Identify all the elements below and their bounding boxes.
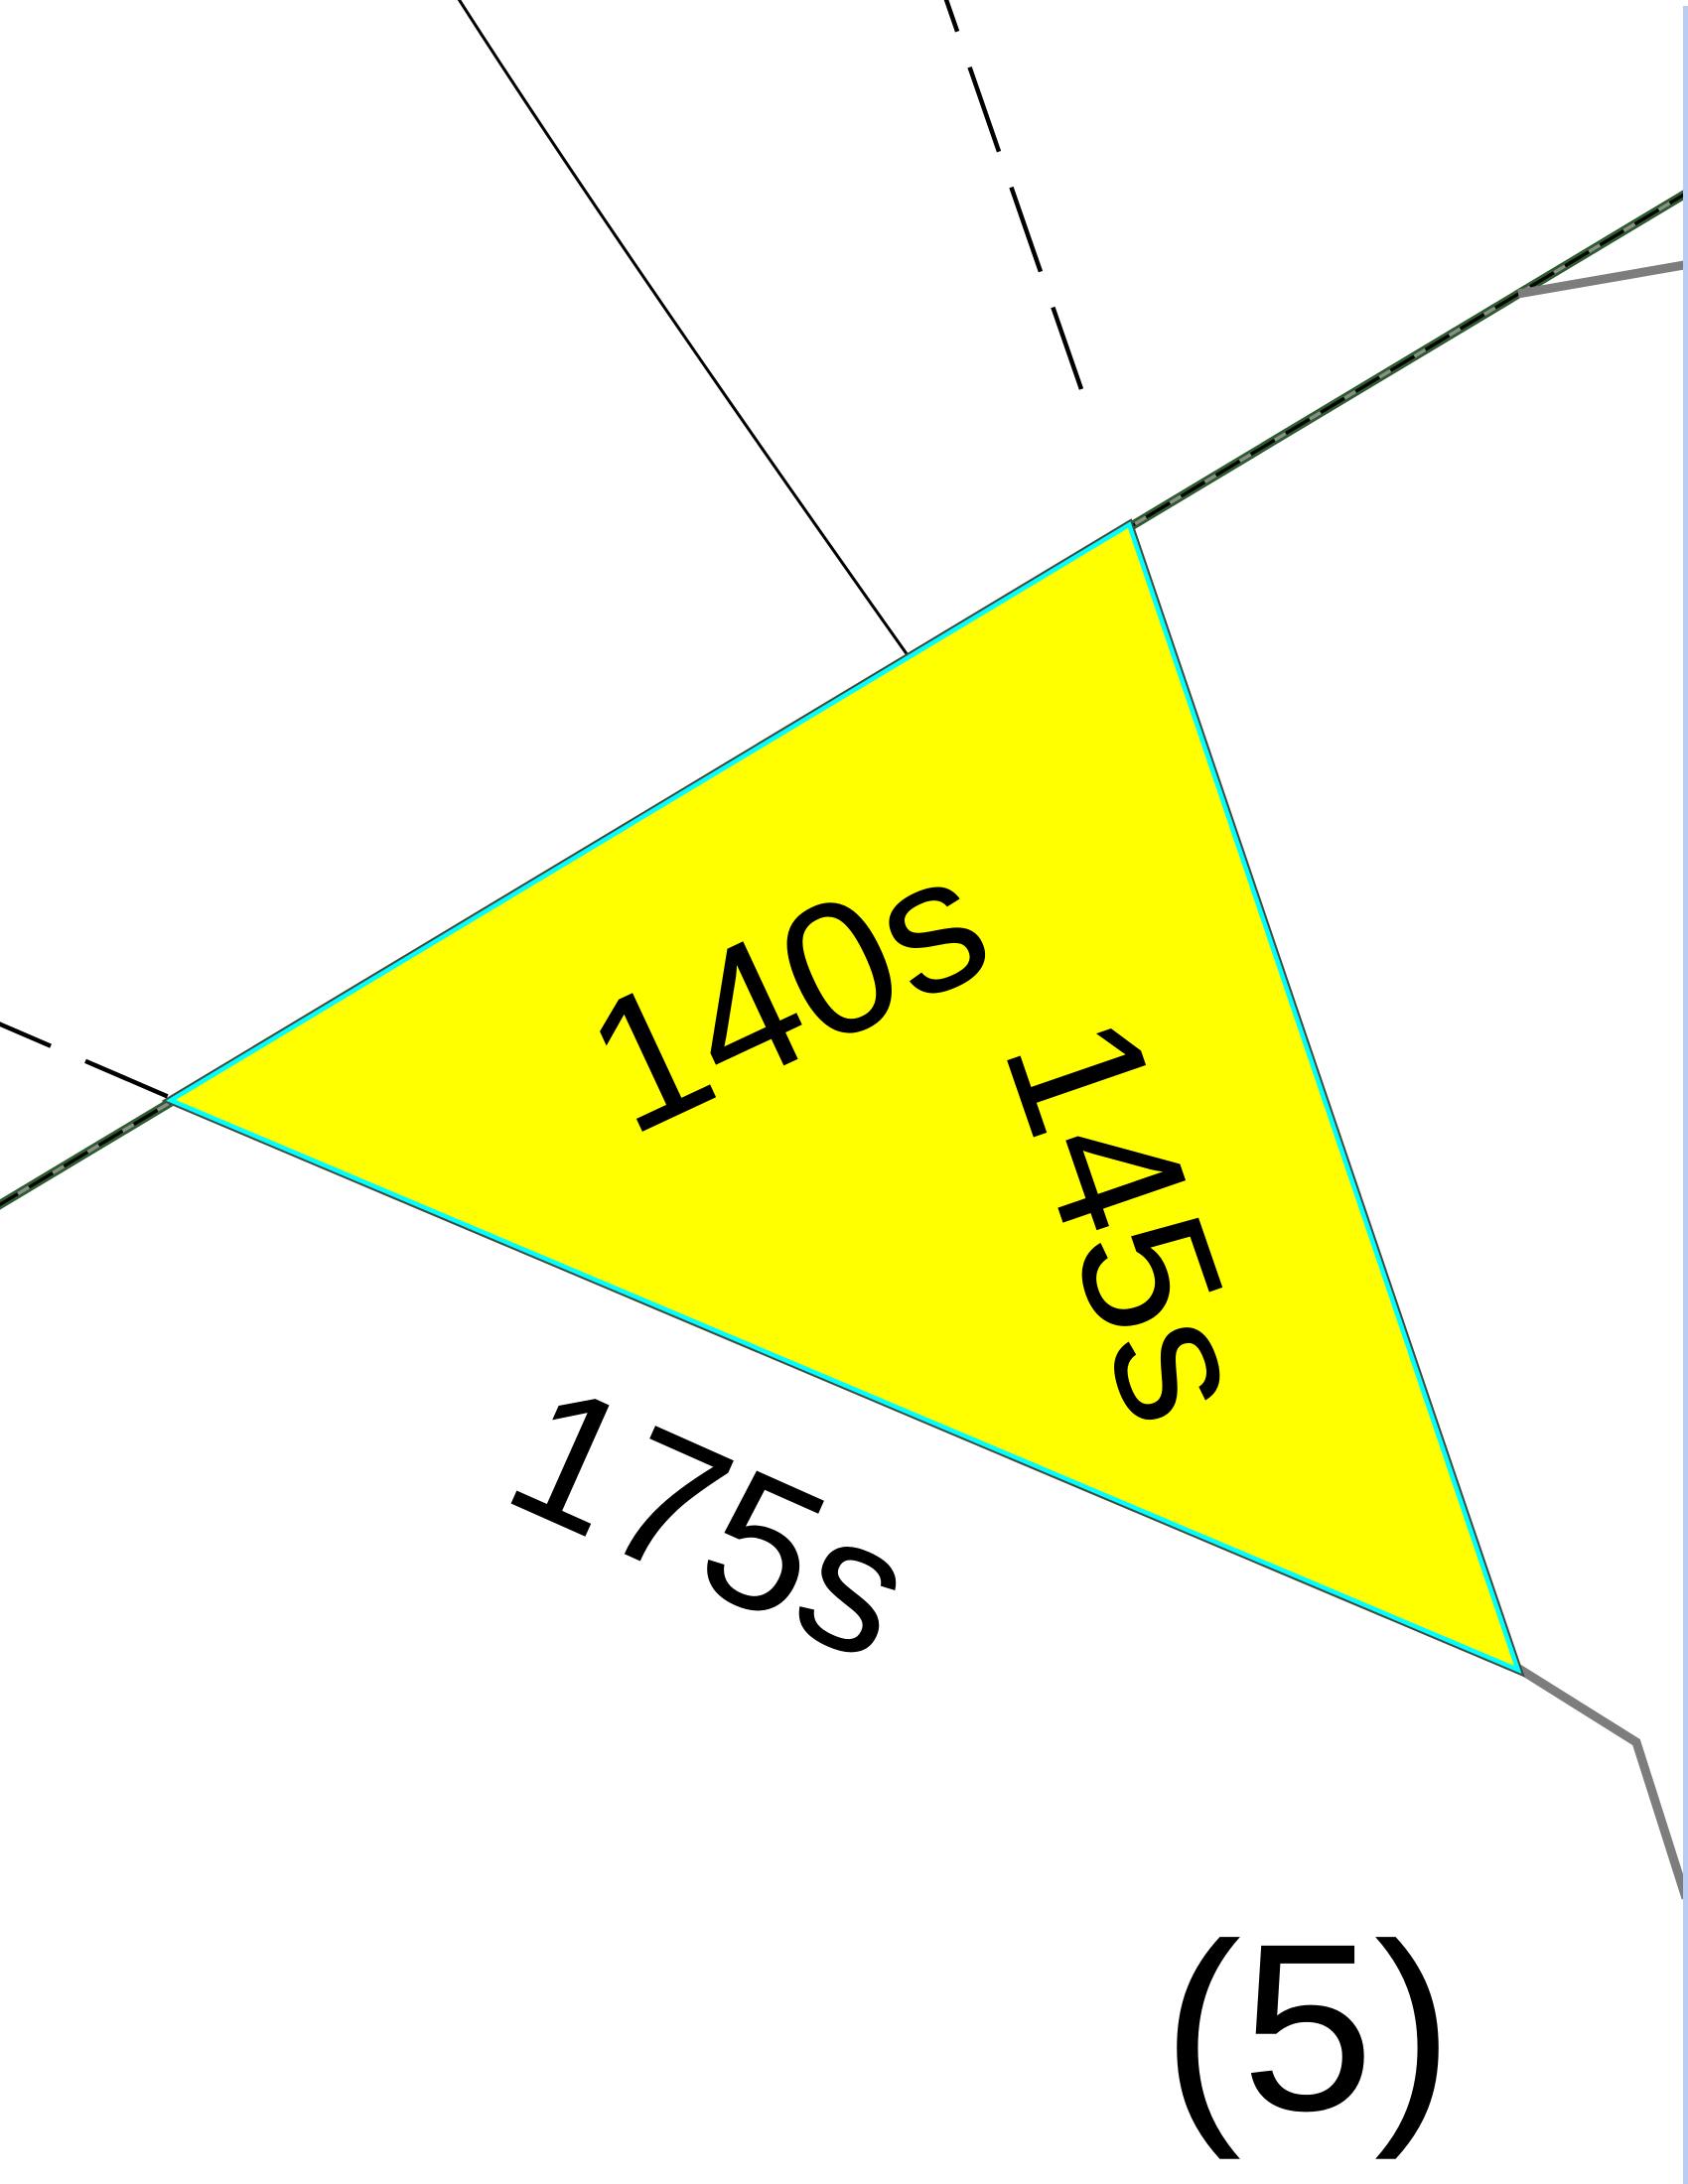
block-number-label: (5)	[1162, 1894, 1453, 2160]
map-viewport: 140s 145s 175s (5)	[0, 0, 1688, 2184]
map-canvas: 140s 145s 175s (5)	[0, 0, 1688, 2184]
